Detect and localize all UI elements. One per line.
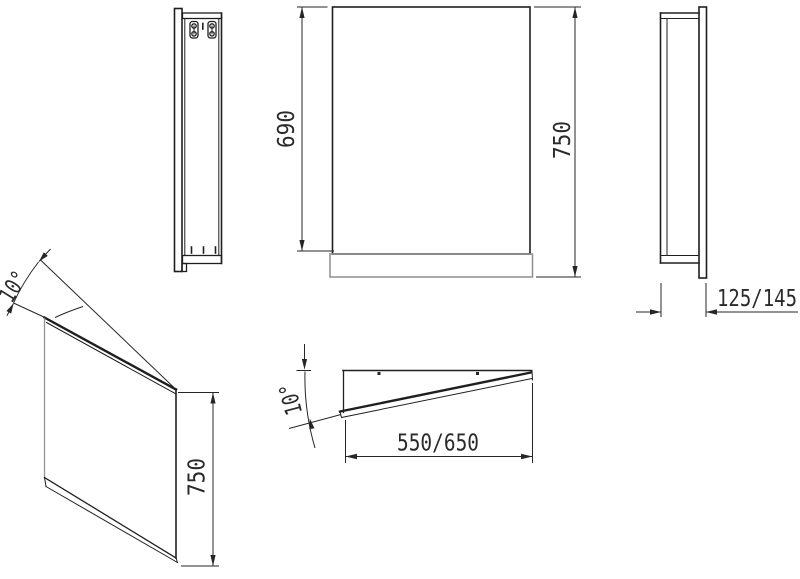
dim-arrow-right	[521, 454, 533, 459]
dim-arrow-right	[650, 309, 661, 314]
angle-ray-upper	[40, 260, 176, 390]
dim-arrow-left	[346, 454, 358, 459]
top-cap	[183, 13, 222, 19]
dim-label-depth: 125/145	[717, 286, 797, 312]
dim-label-height: 750	[185, 458, 211, 496]
keyhole-bracket-icon	[190, 22, 198, 39]
dim-arrow-up	[299, 7, 304, 18]
dim-arrow-down	[210, 555, 215, 566]
dimension-perspective-height: 750	[178, 393, 219, 567]
bottom-cap	[183, 256, 222, 264]
dim-arrow-up	[210, 393, 215, 404]
view-front: 690 750	[274, 7, 581, 277]
angle-arrow	[302, 359, 307, 370]
drawing-svg: 690 750 125/145	[0, 0, 800, 579]
dim-label-tilt-angle: 10°	[275, 380, 308, 418]
tilted-mirror-back-line	[342, 379, 533, 418]
angle-ray-lower	[14, 303, 47, 318]
back-panel	[699, 7, 707, 278]
angle-annotation-plan: 10°	[275, 344, 341, 448]
dim-arrow-up	[572, 7, 577, 18]
dimension-mirror-height: 690	[274, 7, 334, 251]
mirror-top-edge	[45, 318, 177, 390]
angle-ray-sloped	[289, 415, 341, 429]
mirror-slab-edge	[175, 9, 183, 272]
keyhole-bracket-icon	[208, 22, 216, 39]
angle-arc-inner	[55, 307, 83, 318]
bottom-shelf-outline	[330, 254, 533, 277]
technical-drawing-page: 690 750 125/145	[0, 0, 800, 579]
angle-arrow	[309, 419, 314, 430]
dim-label-total-height: 750	[550, 121, 576, 159]
dimension-total-height: 750	[534, 7, 581, 277]
view-plan: 10° 550/650	[275, 344, 533, 463]
dim-label-width: 550/650	[397, 431, 479, 457]
mounting-dot	[476, 372, 479, 375]
dimension-depth: 125/145	[636, 283, 798, 317]
dim-arrow-left	[706, 309, 717, 314]
mirror-right-end-cap	[532, 371, 533, 381]
dim-label-mirror-height: 690	[274, 110, 300, 148]
mirror-top-rim-inner	[47, 323, 177, 395]
angle-annotation-perspective: 10°	[0, 249, 176, 390]
dim-arrow-down	[572, 266, 577, 277]
dim-arrow-down	[299, 240, 304, 251]
view-perspective: 10° 750	[0, 249, 219, 566]
view-side-detail	[175, 9, 222, 272]
mounting-dot	[378, 372, 381, 375]
bottom-strip-edge	[46, 487, 178, 563]
view-side-right: 125/145	[636, 7, 798, 317]
tilted-mirror-front-line	[340, 373, 531, 412]
dimension-width: 550/650	[346, 383, 533, 463]
mirror-front-outline	[333, 7, 531, 254]
dim-label-tilt-angle: 10°	[0, 267, 34, 308]
mirror-bottom-edge	[45, 478, 177, 559]
